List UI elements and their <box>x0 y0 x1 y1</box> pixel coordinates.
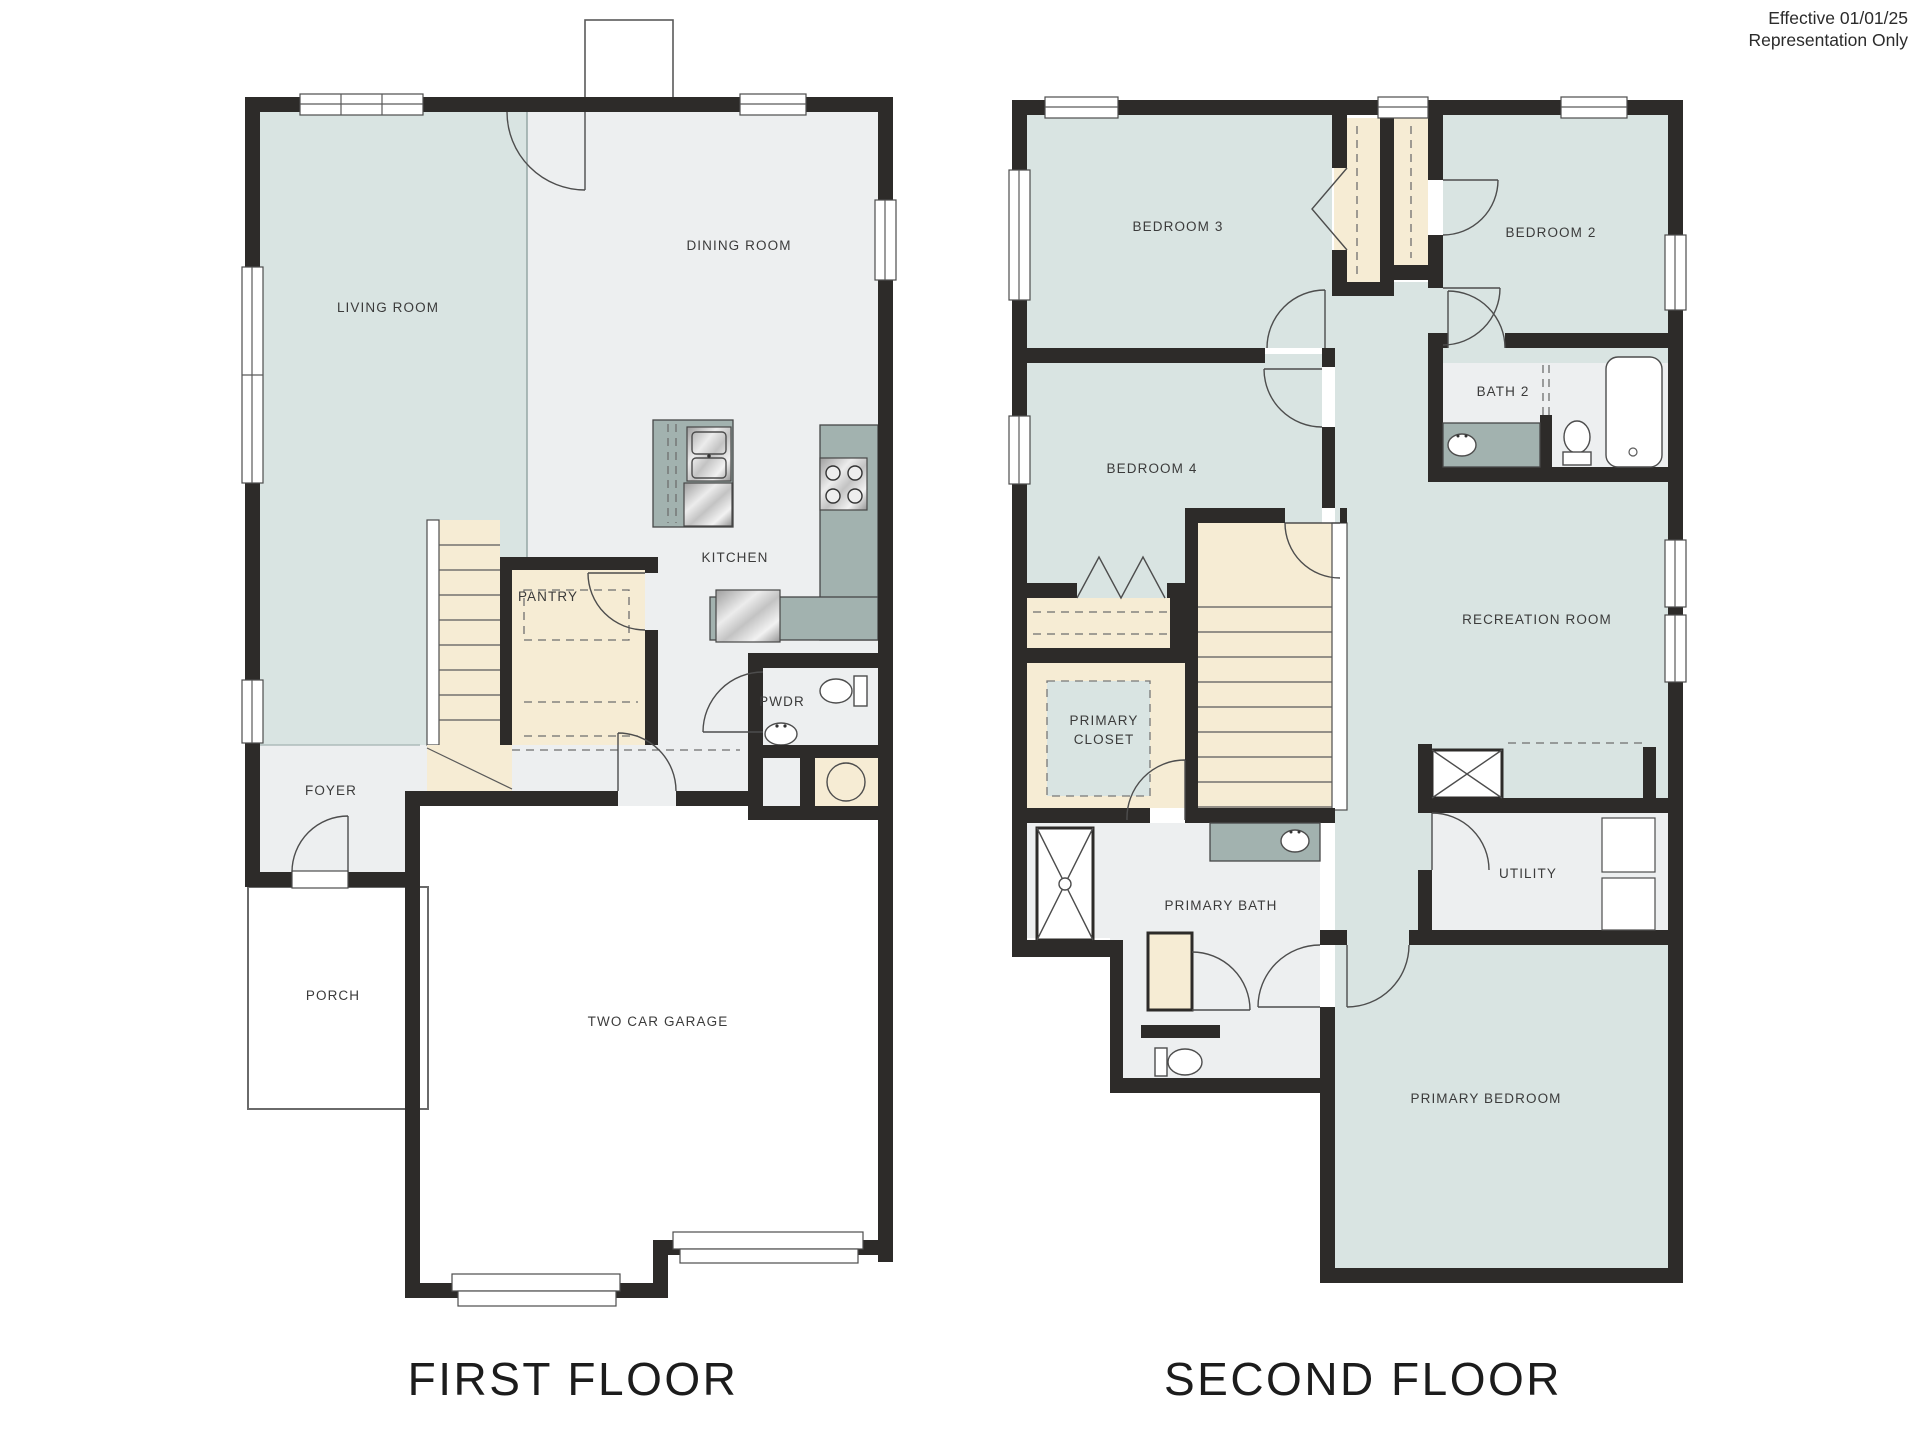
front-door-panel <box>292 871 348 888</box>
room-label-primary-closet-2: CLOSET <box>1074 732 1135 747</box>
stairs-second-floor <box>1198 583 1332 810</box>
stove-fixture <box>820 458 867 510</box>
stairs-first-floor <box>439 520 500 745</box>
kitchen-island <box>653 420 733 527</box>
window <box>1665 235 1686 310</box>
room-label-powder: PWDR <box>759 694 805 709</box>
toilet-fixture <box>1168 1049 1202 1075</box>
disclaimer-line2: Representation Only <box>1748 30 1908 52</box>
window <box>1009 170 1030 300</box>
toilet-tank <box>854 676 867 706</box>
room-label-pantry: PANTRY <box>518 589 578 604</box>
first-floor-title: FIRST FLOOR <box>408 1352 739 1406</box>
window <box>875 200 896 280</box>
room-label-living: LIVING ROOM <box>337 300 439 315</box>
water-heater-closet <box>815 758 878 806</box>
primary-shower <box>1037 828 1093 940</box>
window <box>740 94 806 115</box>
tub-fixture <box>1606 357 1662 467</box>
room-label-utility: UTILITY <box>1499 866 1557 881</box>
disclaimer-line1: Effective 01/01/25 <box>1748 8 1908 30</box>
toilet-fixture <box>820 679 852 703</box>
dishwasher-fixture <box>684 483 732 526</box>
closet-bedroom4 <box>1027 598 1185 648</box>
first-floor-room-fills <box>248 20 878 1283</box>
dryer-box <box>1602 878 1655 930</box>
chimney-outline <box>585 20 673 105</box>
room-garage-fill <box>420 806 878 1283</box>
window <box>1378 97 1428 118</box>
window <box>300 94 423 115</box>
mechanical-chase <box>1432 750 1502 798</box>
toilet-fixture <box>1564 421 1590 453</box>
room-label-foyer: FOYER <box>305 783 357 798</box>
second-floor-plan: BEDROOM 3 BEDROOM 2 BEDROOM 4 BATH 2 REC… <box>1009 97 1686 1283</box>
room-label-bath2: BATH 2 <box>1477 384 1530 399</box>
oven-fixture <box>716 590 780 642</box>
floor-plan-canvas: LIVING ROOM DINING ROOM KITCHEN PANTRY P… <box>0 0 1920 1440</box>
room-label-kitchen: KITCHEN <box>702 550 769 565</box>
floorplan-page: LIVING ROOM DINING ROOM KITCHEN PANTRY P… <box>0 0 1920 1440</box>
room-label-recreation: RECREATION ROOM <box>1462 612 1612 627</box>
sink-fixture <box>765 723 797 745</box>
disclaimer-text: Effective 01/01/25 Representation Only <box>1748 8 1908 52</box>
sink-fixture <box>1281 830 1309 852</box>
window <box>1665 540 1686 607</box>
room-label-bedroom3: BEDROOM 3 <box>1133 219 1224 234</box>
window <box>1009 416 1030 484</box>
first-floor-plan: LIVING ROOM DINING ROOM KITCHEN PANTRY P… <box>242 20 896 1306</box>
toilet-tank <box>1155 1048 1167 1076</box>
room-label-bedroom2: BEDROOM 2 <box>1506 225 1597 240</box>
toilet-tank <box>1563 452 1591 465</box>
room-label-primary-closet-1: PRIMARY <box>1070 713 1139 728</box>
window <box>1561 97 1627 118</box>
room-label-primary-bath: PRIMARY BATH <box>1165 898 1278 913</box>
room-label-primary-bedroom: PRIMARY BEDROOM <box>1410 1091 1561 1106</box>
linen-closet <box>1148 933 1192 1010</box>
window <box>242 680 263 743</box>
room-label-garage: TWO CAR GARAGE <box>588 1014 729 1029</box>
window <box>242 267 263 483</box>
window <box>1045 97 1118 118</box>
washer-box <box>1602 818 1655 872</box>
sink-fixture <box>1448 434 1476 456</box>
room-label-dining: DINING ROOM <box>686 238 791 253</box>
second-floor-title: SECOND FLOOR <box>1164 1352 1562 1406</box>
room-label-bedroom4: BEDROOM 4 <box>1107 461 1198 476</box>
room-label-porch: PORCH <box>306 988 360 1003</box>
window <box>1665 615 1686 682</box>
